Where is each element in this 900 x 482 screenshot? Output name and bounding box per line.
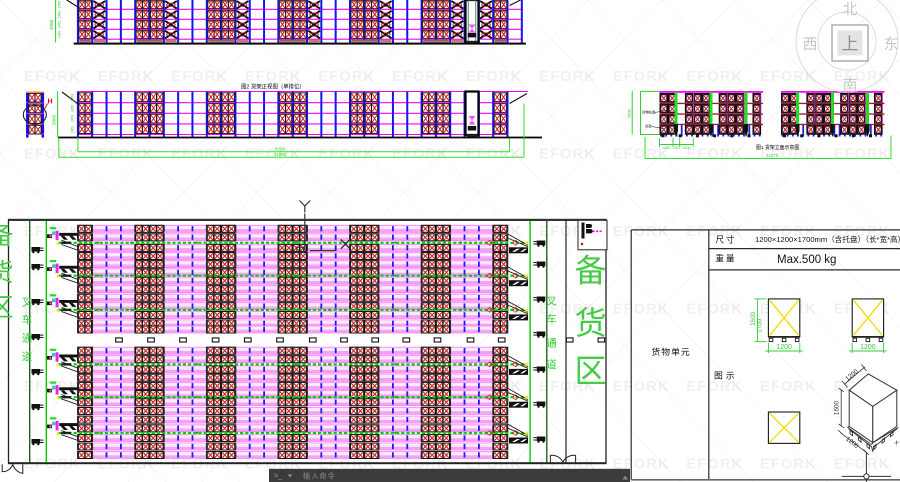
svg-text:北: 北: [842, 1, 857, 18]
svg-text:区: 区: [574, 353, 606, 389]
svg-text:上: 上: [842, 35, 859, 54]
svg-text:EFORK: EFORK: [466, 147, 523, 163]
svg-text:1450: 1450: [58, 31, 62, 38]
svg-text:EFORK: EFORK: [24, 457, 81, 473]
svg-text:8250: 8250: [275, 147, 286, 152]
svg-text:图2 货架正视图（单排位）: 图2 货架正视图（单排位）: [241, 83, 305, 91]
svg-text:车: 车: [22, 313, 33, 326]
svg-text:EFORK: EFORK: [171, 147, 228, 163]
svg-text:EFORK: EFORK: [392, 69, 449, 85]
svg-text:叉: 叉: [546, 296, 557, 308]
svg-text:1200: 1200: [860, 344, 876, 351]
svg-text:EFORK: EFORK: [686, 69, 743, 85]
svg-text:货: 货: [0, 259, 14, 287]
svg-text:1200: 1200: [776, 344, 792, 351]
svg-text:东: 东: [883, 36, 898, 53]
svg-text:EFORK: EFORK: [171, 69, 228, 85]
svg-text:备: 备: [0, 222, 14, 250]
svg-text:EFORK: EFORK: [318, 147, 375, 163]
svg-text:EFORK: EFORK: [24, 147, 81, 163]
svg-text:1450: 1450: [71, 115, 75, 122]
svg-text:EFORK: EFORK: [760, 69, 817, 85]
svg-text:4500: 4500: [49, 19, 54, 30]
svg-text:EFORK: EFORK: [613, 379, 670, 395]
svg-text:区: 区: [0, 294, 14, 322]
svg-text:EFORK: EFORK: [98, 147, 155, 163]
svg-text:EFORK: EFORK: [466, 69, 523, 85]
svg-text:5800: 5800: [51, 114, 56, 125]
svg-text:EFORK: EFORK: [392, 147, 449, 163]
svg-text:尺寸: 尺寸: [716, 235, 737, 245]
svg-text:EFORK: EFORK: [834, 457, 891, 473]
svg-text:1600: 1600: [834, 400, 841, 415]
svg-text:EFORK: EFORK: [613, 69, 670, 85]
svg-text:H: H: [48, 99, 53, 106]
svg-text:道: 道: [22, 350, 33, 363]
svg-text:1450: 1450: [71, 126, 75, 133]
svg-text:EFORK: EFORK: [686, 379, 743, 395]
svg-text:EFORK: EFORK: [245, 69, 302, 85]
svg-text:>_: >_: [274, 473, 282, 480]
svg-text:EFORK: EFORK: [613, 302, 670, 318]
svg-text:1700: 1700: [756, 318, 763, 332]
svg-text:Max.500 kg: Max.500 kg: [777, 254, 836, 266]
svg-text:EFORK: EFORK: [539, 69, 596, 85]
svg-text:货: 货: [574, 305, 606, 341]
svg-text:南: 南: [842, 77, 857, 94]
svg-text:输入命令: 输入命令: [303, 471, 336, 480]
svg-text:EFORK: EFORK: [613, 224, 670, 240]
svg-text:重量: 重量: [716, 254, 737, 264]
svg-text:货物托盘: 货物托盘: [642, 110, 656, 115]
svg-text:44275: 44275: [766, 153, 779, 158]
svg-text:EFORK: EFORK: [98, 69, 155, 85]
svg-text:1450: 1450: [71, 94, 75, 101]
svg-text:1450: 1450: [58, 11, 62, 18]
svg-text:EFORK: EFORK: [686, 302, 743, 318]
svg-text:叉: 叉: [22, 297, 33, 309]
svg-text:EFORK: EFORK: [539, 147, 596, 163]
svg-text:EFORK: EFORK: [834, 147, 891, 163]
svg-text:备: 备: [574, 253, 606, 289]
svg-text:通: 通: [22, 333, 33, 345]
svg-text:1450: 1450: [58, 1, 62, 8]
svg-text:1450: 1450: [58, 21, 62, 28]
svg-text:道: 道: [546, 358, 557, 371]
svg-text:1200×1200×1700mm（含托盘）（长*宽*高）: 1200×1200×1700mm（含托盘）（长*宽*高）: [755, 234, 900, 244]
svg-text:5800: 5800: [627, 108, 632, 118]
svg-text:1400: 1400: [662, 146, 670, 150]
svg-text:图示: 图示: [714, 371, 738, 381]
svg-text:1400: 1400: [683, 146, 691, 150]
svg-text:1450: 1450: [71, 105, 75, 112]
svg-text:11550: 11550: [274, 152, 287, 157]
svg-text:EFORK: EFORK: [686, 457, 743, 473]
svg-text:EFORK: EFORK: [760, 457, 817, 473]
svg-text:EFORK: EFORK: [318, 69, 375, 85]
svg-text:图1 货架立面示意图: 图1 货架立面示意图: [756, 144, 799, 151]
svg-text:EFORK: EFORK: [760, 379, 817, 395]
svg-text:1000: 1000: [672, 146, 680, 150]
svg-text:车: 车: [546, 313, 557, 326]
svg-text:EFORK: EFORK: [686, 147, 743, 163]
svg-text:货物单元: 货物单元: [652, 346, 691, 357]
svg-text:货架: 货架: [645, 124, 652, 129]
svg-text:EFORK: EFORK: [24, 69, 81, 85]
svg-text:西: 西: [802, 36, 817, 53]
svg-text:通: 通: [546, 338, 557, 350]
